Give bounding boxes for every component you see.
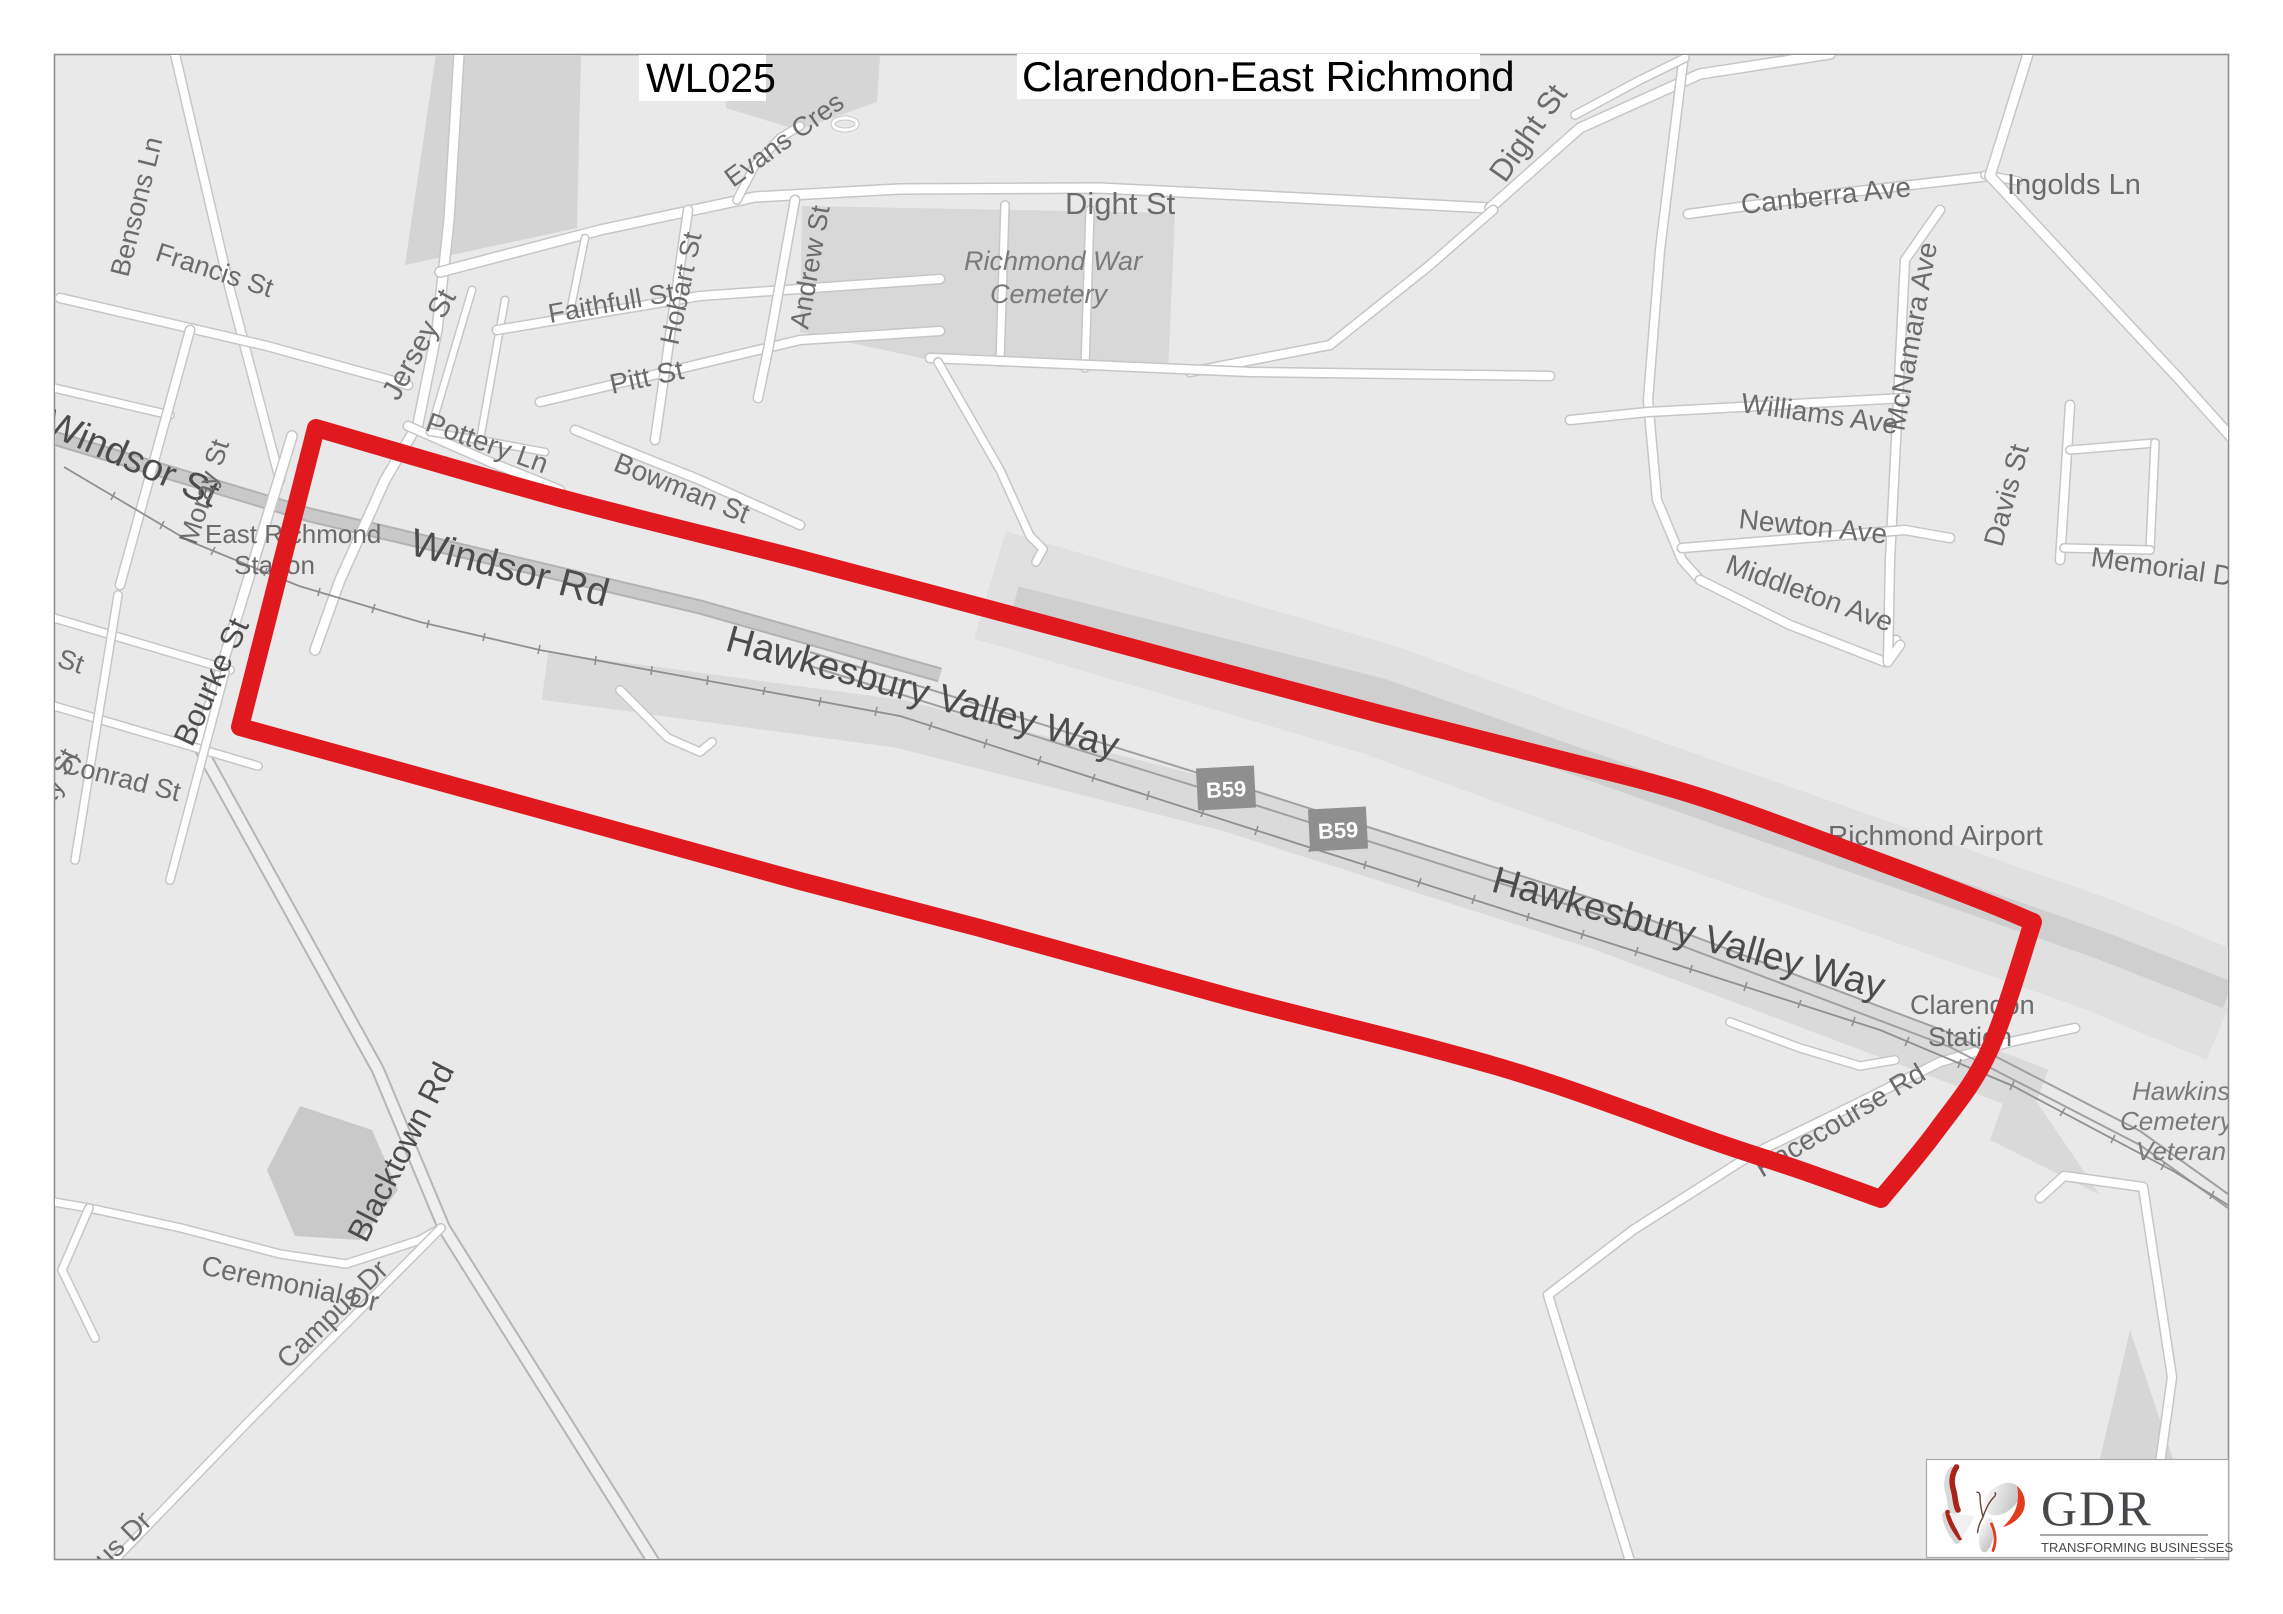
- svg-text:Dight St: Dight St: [1065, 186, 1176, 221]
- svg-text:GDR: GDR: [2041, 1480, 2153, 1536]
- svg-text:Cemetery: Cemetery: [990, 279, 1109, 309]
- svg-text:Veteran: Veteran: [2136, 1136, 2226, 1166]
- svg-text:B59: B59: [1205, 776, 1247, 803]
- svg-text:Hawkins: Hawkins: [2132, 1076, 2230, 1106]
- svg-text:Richmond War: Richmond War: [964, 246, 1143, 276]
- svg-text:Ingolds Ln: Ingolds Ln: [2007, 169, 2141, 201]
- svg-text:TRANSFORMING BUSINESSES: TRANSFORMING BUSINESSES: [2041, 1540, 2233, 1555]
- svg-text:Clarendon-East Richmond: Clarendon-East Richmond: [1022, 53, 1515, 100]
- svg-text:B59: B59: [1317, 817, 1359, 844]
- svg-text:Cemetery: Cemetery: [2120, 1106, 2235, 1136]
- svg-text:WL025: WL025: [646, 55, 776, 101]
